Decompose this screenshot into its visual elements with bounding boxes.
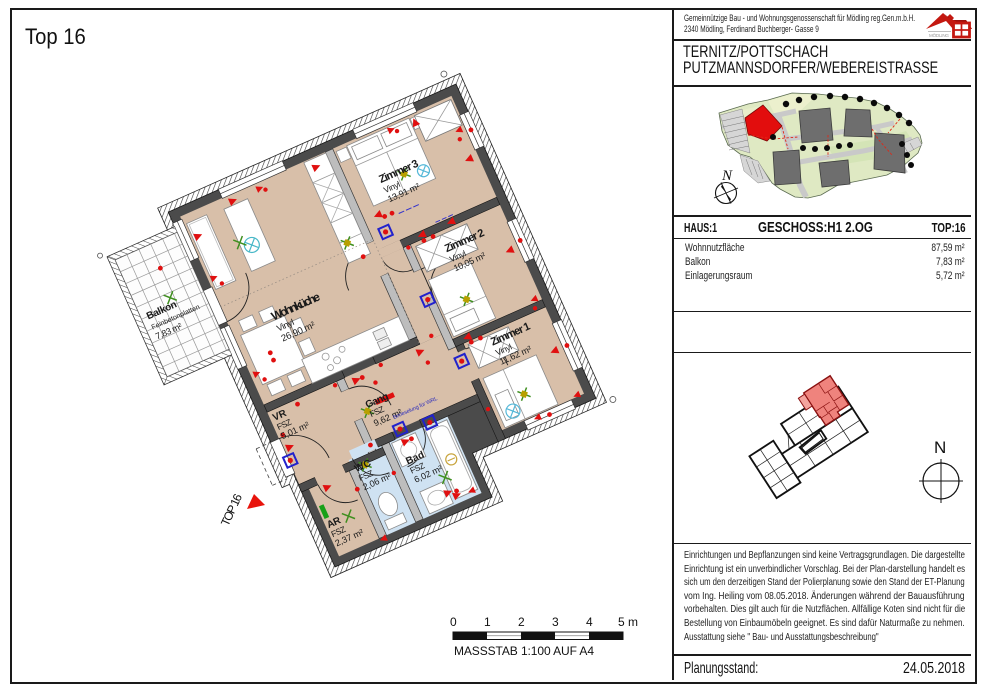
svg-text:N: N — [934, 438, 946, 457]
svg-text:1: 1 — [484, 615, 491, 629]
svg-text:5 m: 5 m — [618, 615, 638, 629]
svg-text:3: 3 — [552, 615, 559, 629]
svg-text:2: 2 — [518, 615, 525, 629]
svg-text:MASSSTAB 1:100 AUF A4: MASSSTAB 1:100 AUF A4 — [454, 644, 594, 658]
svg-text:MÖDLING: MÖDLING — [929, 32, 949, 38]
svg-text:0: 0 — [450, 615, 457, 629]
svg-text:N: N — [721, 168, 733, 184]
svg-text:TOP 16: TOP 16 — [218, 491, 245, 528]
svg-text:4: 4 — [586, 615, 593, 629]
